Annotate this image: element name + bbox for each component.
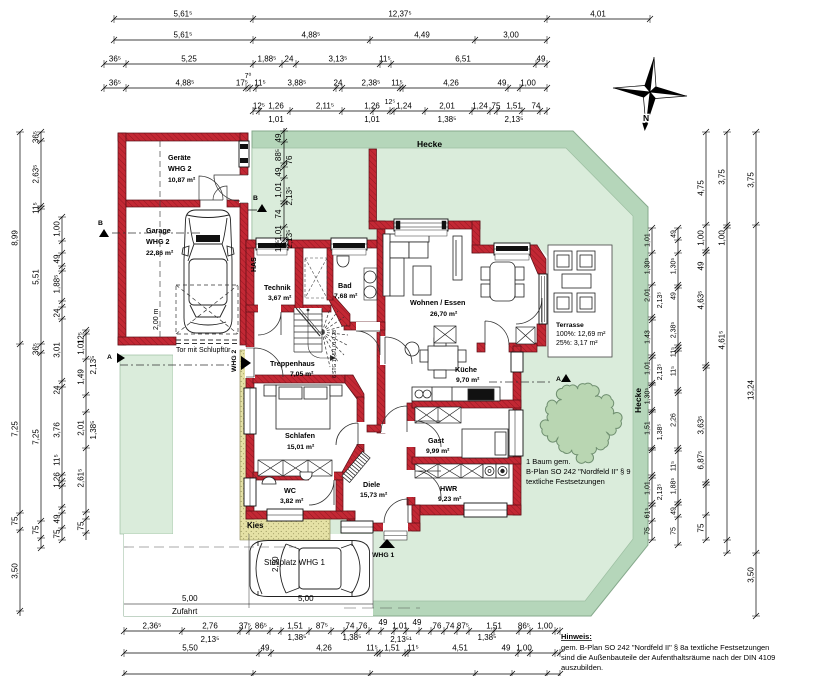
svg-text:1,01: 1,01 — [392, 622, 408, 631]
svg-text:WHG 2: WHG 2 — [146, 237, 170, 246]
svg-text:1,43: 1,43 — [645, 330, 652, 344]
svg-text:1,00: 1,00 — [53, 221, 62, 237]
svg-text:2,13⁵: 2,13⁵ — [285, 187, 294, 206]
svg-text:74: 74 — [446, 622, 455, 631]
svg-text:WHG 1: WHG 1 — [372, 552, 394, 559]
svg-text:36⁵: 36⁵ — [109, 79, 121, 88]
svg-text:76: 76 — [433, 622, 442, 631]
svg-text:5,50: 5,50 — [182, 644, 198, 653]
svg-text:49: 49 — [537, 55, 546, 64]
svg-text:3,50: 3,50 — [747, 567, 756, 583]
svg-text:12,37⁵: 12,37⁵ — [388, 10, 411, 19]
svg-text:WC: WC — [284, 486, 296, 495]
svg-text:5,51: 5,51 — [32, 269, 41, 285]
svg-text:100%: 12,69 m²: 100%: 12,69 m² — [556, 331, 606, 338]
svg-text:88⁵: 88⁵ — [274, 149, 283, 161]
svg-text:1,00: 1,00 — [520, 79, 536, 88]
svg-text:2,61⁵: 2,61⁵ — [77, 469, 86, 488]
svg-text:3,67 m²: 3,67 m² — [268, 295, 292, 302]
svg-text:4,63⁵: 4,63⁵ — [697, 291, 706, 310]
svg-text:1,00: 1,00 — [516, 644, 532, 653]
svg-text:9,99 m²: 9,99 m² — [426, 448, 450, 455]
svg-text:49: 49 — [379, 618, 388, 627]
svg-text:3,82 m²: 3,82 m² — [280, 498, 304, 505]
svg-text:4,88⁵: 4,88⁵ — [302, 31, 321, 40]
svg-text:6 STG 17,5/1,01-0,28: 6 STG 17,5/1,01-0,28 — [332, 330, 338, 378]
svg-text:1,30⁵: 1,30⁵ — [645, 258, 652, 275]
svg-text:auszubilden.: auszubilden. — [561, 663, 603, 672]
svg-text:Küche: Küche — [455, 365, 477, 374]
svg-text:B-Plan SO 242 "Nordfeld II" §: B-Plan SO 242 "Nordfeld II" § 9 — [526, 467, 631, 476]
svg-text:Zufahrt: Zufahrt — [172, 607, 198, 616]
svg-text:Technik: Technik — [264, 283, 291, 292]
svg-text:Bad: Bad — [338, 281, 352, 290]
svg-text:49: 49 — [671, 230, 678, 238]
svg-text:1,01: 1,01 — [274, 225, 283, 241]
svg-text:12⁵: 12⁵ — [274, 240, 283, 252]
svg-text:N: N — [643, 113, 649, 123]
svg-text:4,61⁵: 4,61⁵ — [718, 331, 727, 350]
svg-text:49: 49 — [671, 507, 678, 515]
svg-text:1,26: 1,26 — [268, 102, 284, 111]
svg-text:75: 75 — [645, 527, 652, 535]
svg-text:4,26: 4,26 — [316, 644, 332, 653]
svg-text:1,38⁵: 1,38⁵ — [478, 633, 497, 642]
svg-text:1,38⁵: 1,38⁵ — [438, 115, 457, 124]
svg-text:3,88⁵: 3,88⁵ — [288, 79, 307, 88]
svg-text:Tor mit Schlupftür: Tor mit Schlupftür — [176, 347, 231, 354]
svg-text:8,99: 8,99 — [11, 230, 20, 246]
svg-text:2,01: 2,01 — [645, 288, 652, 302]
svg-text:2,36⁵: 2,36⁵ — [143, 622, 162, 631]
svg-text:1,38⁵: 1,38⁵ — [657, 424, 664, 441]
svg-text:1,01: 1,01 — [274, 182, 283, 198]
svg-text:74: 74 — [346, 622, 355, 631]
svg-text:1,51: 1,51 — [645, 421, 652, 435]
svg-text:1,30⁵: 1,30⁵ — [671, 258, 678, 275]
svg-text:7,25: 7,25 — [11, 421, 20, 437]
svg-text:76: 76 — [285, 155, 294, 164]
svg-text:1,01: 1,01 — [645, 233, 652, 247]
svg-text:Treppenhaus: Treppenhaus — [270, 359, 315, 368]
svg-text:1,01: 1,01 — [645, 361, 652, 375]
svg-text:3,00: 3,00 — [503, 31, 519, 40]
svg-text:Garage: Garage — [146, 226, 171, 235]
svg-text:7,05 m²: 7,05 m² — [290, 371, 314, 378]
svg-text:49: 49 — [261, 644, 270, 653]
svg-text:4,26: 4,26 — [443, 79, 459, 88]
svg-text:49: 49 — [671, 292, 678, 300]
svg-text:7⁰: 7⁰ — [245, 72, 252, 80]
svg-text:36⁵: 36⁵ — [32, 131, 41, 143]
svg-text:2,13⁵: 2,13⁵ — [89, 356, 98, 375]
svg-text:3,01: 3,01 — [53, 342, 62, 358]
svg-text:WHG 2: WHG 2 — [231, 350, 238, 372]
svg-text:49: 49 — [697, 261, 706, 270]
svg-text:WHG 2: WHG 2 — [168, 164, 192, 173]
svg-text:1,24: 1,24 — [472, 102, 488, 111]
svg-text:11⁵: 11⁵ — [671, 347, 678, 357]
svg-text:11⁵: 11⁵ — [366, 644, 378, 653]
svg-text:A: A — [107, 354, 112, 361]
svg-text:1,51: 1,51 — [486, 622, 502, 631]
svg-text:1,01: 1,01 — [77, 339, 86, 355]
svg-text:1,51: 1,51 — [506, 102, 522, 111]
svg-text:24: 24 — [53, 385, 62, 394]
svg-text:86⁵: 86⁵ — [518, 622, 530, 631]
svg-text:2,13⁵: 2,13⁵ — [505, 115, 524, 124]
svg-text:A: A — [556, 376, 561, 383]
svg-text:13,24: 13,24 — [747, 379, 756, 400]
svg-text:12⁵: 12⁵ — [385, 99, 396, 106]
svg-text:Gast: Gast — [428, 436, 445, 445]
svg-text:1,30⁵: 1,30⁵ — [645, 388, 652, 405]
svg-text:49: 49 — [274, 167, 283, 176]
svg-text:sind die Außenbauteile der Auf: sind die Außenbauteile der Aufenthaltsrä… — [561, 653, 775, 662]
svg-text:75: 75 — [11, 516, 20, 525]
svg-text:4,51: 4,51 — [452, 644, 468, 653]
svg-text:1,49: 1,49 — [77, 369, 86, 385]
svg-text:Schlafen: Schlafen — [285, 431, 315, 440]
svg-text:24: 24 — [53, 308, 62, 317]
svg-text:3,63⁵: 3,63⁵ — [697, 416, 706, 435]
svg-text:3,75: 3,75 — [718, 169, 727, 185]
svg-text:1,24: 1,24 — [396, 102, 412, 111]
svg-text:11⁵: 11⁵ — [254, 79, 266, 88]
svg-text:75: 75 — [492, 102, 501, 111]
svg-text:Wohnen / Essen: Wohnen / Essen — [410, 298, 465, 307]
svg-text:15,73 m²: 15,73 m² — [360, 492, 388, 499]
svg-text:2,76: 2,76 — [202, 622, 218, 631]
svg-text:25%: 3,17 m²: 25%: 3,17 m² — [556, 340, 598, 347]
svg-text:7,68 m²: 7,68 m² — [334, 293, 358, 300]
svg-text:2,01: 2,01 — [439, 102, 455, 111]
svg-text:49: 49 — [53, 514, 62, 523]
svg-text:3,50: 3,50 — [11, 563, 20, 579]
svg-text:Geräte: Geräte — [168, 153, 191, 162]
svg-text:75: 75 — [53, 529, 62, 538]
svg-text:49: 49 — [502, 644, 511, 653]
svg-text:11⁵: 11⁵ — [391, 79, 403, 88]
svg-text:B: B — [98, 220, 103, 227]
svg-text:3,13⁵: 3,13⁵ — [329, 55, 348, 64]
svg-text:Hinweis:: Hinweis: — [561, 632, 592, 641]
svg-text:75: 75 — [32, 525, 41, 534]
svg-text:24: 24 — [334, 79, 343, 88]
svg-text:1,88⁵: 1,88⁵ — [258, 55, 277, 64]
svg-text:4,88⁵: 4,88⁵ — [176, 79, 195, 88]
svg-text:11⁵: 11⁵ — [379, 55, 391, 64]
svg-text:1,00: 1,00 — [537, 622, 553, 631]
svg-text:15,01 m²: 15,01 m² — [287, 444, 315, 451]
svg-text:11⁵: 11⁵ — [407, 644, 419, 653]
svg-text:Diele: Diele — [363, 480, 380, 489]
svg-text:75: 75 — [77, 521, 86, 530]
svg-text:2,50: 2,50 — [271, 556, 280, 572]
svg-text:86⁵: 86⁵ — [255, 622, 267, 631]
svg-text:6,87⁵: 6,87⁵ — [697, 451, 706, 470]
svg-text:2,13⁵: 2,13⁵ — [201, 635, 220, 644]
svg-text:6,51: 6,51 — [455, 55, 471, 64]
svg-text:12⁵: 12⁵ — [253, 102, 265, 111]
svg-text:75: 75 — [697, 523, 706, 532]
svg-text:87⁵: 87⁵ — [316, 622, 328, 631]
svg-text:1,51: 1,51 — [287, 622, 303, 631]
svg-text:4,75: 4,75 — [697, 180, 706, 196]
svg-text:49: 49 — [274, 133, 283, 142]
svg-text:2,26: 2,26 — [671, 413, 678, 427]
svg-text:Hecke: Hecke — [417, 139, 442, 149]
svg-text:B: B — [253, 195, 258, 202]
svg-text:74: 74 — [274, 209, 283, 218]
svg-text:36⁵: 36⁵ — [32, 343, 41, 355]
svg-text:1,26: 1,26 — [364, 102, 380, 111]
svg-text:2,13⁵: 2,13⁵ — [657, 484, 664, 501]
svg-text:49: 49 — [413, 618, 422, 627]
svg-text:24: 24 — [285, 55, 294, 64]
svg-text:5,00: 5,00 — [298, 594, 314, 603]
svg-text:9,70 m²: 9,70 m² — [456, 377, 480, 384]
svg-text:5,61⁵: 5,61⁵ — [174, 10, 193, 19]
svg-text:5,61⁵: 5,61⁵ — [174, 31, 193, 40]
svg-text:1,38⁵: 1,38⁵ — [89, 421, 98, 440]
svg-text:2,13⁵: 2,13⁵ — [657, 292, 664, 309]
svg-text:1 Baum gem.: 1 Baum gem. — [526, 457, 571, 466]
svg-text:2,13⁵: 2,13⁵ — [657, 364, 664, 381]
svg-text:Hecke: Hecke — [633, 388, 643, 413]
svg-text:76: 76 — [359, 622, 368, 631]
svg-text:11⁵: 11⁵ — [32, 202, 41, 214]
svg-text:2,01: 2,01 — [77, 420, 86, 436]
svg-text:1,01: 1,01 — [364, 115, 380, 124]
svg-text:Kies: Kies — [247, 521, 264, 530]
svg-text:74: 74 — [532, 102, 541, 111]
svg-text:49: 49 — [53, 254, 62, 263]
svg-text:1,00: 1,00 — [718, 230, 727, 246]
svg-text:2,38⁵: 2,38⁵ — [671, 322, 678, 339]
svg-text:1,00: 1,00 — [697, 230, 706, 246]
svg-text:11⁵: 11⁵ — [53, 454, 62, 466]
svg-text:gem. B-Plan SO 242 "Nordfeld I: gem. B-Plan SO 242 "Nordfeld II" § 8a te… — [561, 643, 769, 652]
svg-text:11⁵: 11⁵ — [671, 366, 678, 376]
svg-text:5,25: 5,25 — [181, 55, 197, 64]
svg-text:2,63⁵: 2,63⁵ — [32, 165, 41, 184]
svg-text:textliche Festsetzungen: textliche Festsetzungen — [526, 477, 605, 486]
svg-text:4,01: 4,01 — [590, 10, 606, 19]
svg-text:9,23 m²: 9,23 m² — [438, 496, 462, 503]
svg-text:4,49: 4,49 — [414, 31, 430, 40]
svg-text:2,11⁵: 2,11⁵ — [316, 102, 334, 111]
svg-text:3,76: 3,76 — [53, 422, 62, 438]
svg-text:7,25: 7,25 — [32, 429, 41, 445]
svg-text:75: 75 — [671, 527, 678, 535]
svg-text:49: 49 — [498, 79, 507, 88]
svg-text:2,38⁵: 2,38⁵ — [362, 79, 381, 88]
svg-text:HWR: HWR — [440, 484, 458, 493]
svg-text:1,01: 1,01 — [645, 481, 652, 495]
svg-text:36⁵: 36⁵ — [109, 55, 121, 64]
svg-text:1,88⁵: 1,88⁵ — [53, 275, 62, 294]
svg-text:10,87 m²: 10,87 m² — [168, 177, 196, 184]
svg-text:61⁵: 61⁵ — [645, 508, 652, 519]
svg-text:1,88⁵: 1,88⁵ — [671, 478, 678, 495]
svg-text:Terrasse: Terrasse — [556, 322, 584, 329]
svg-text:11⁵: 11⁵ — [671, 461, 678, 471]
svg-text:1,38⁵: 1,38⁵ — [288, 633, 307, 642]
svg-text:37⁵: 37⁵ — [239, 622, 251, 631]
svg-text:1,38⁵: 1,38⁵ — [343, 633, 362, 642]
svg-text:26,70 m²: 26,70 m² — [430, 311, 458, 318]
svg-text:1,26: 1,26 — [53, 472, 62, 488]
svg-text:1,01: 1,01 — [268, 115, 284, 124]
svg-text:5,00: 5,00 — [182, 594, 198, 603]
svg-text:2,00 m: 2,00 m — [153, 308, 160, 330]
svg-text:3,75: 3,75 — [747, 172, 756, 188]
svg-text:HAS: HAS — [251, 257, 258, 272]
svg-text:1,51: 1,51 — [384, 644, 400, 653]
svg-text:2,13⁵: 2,13⁵ — [285, 230, 294, 249]
svg-text:87⁵: 87⁵ — [457, 622, 469, 631]
